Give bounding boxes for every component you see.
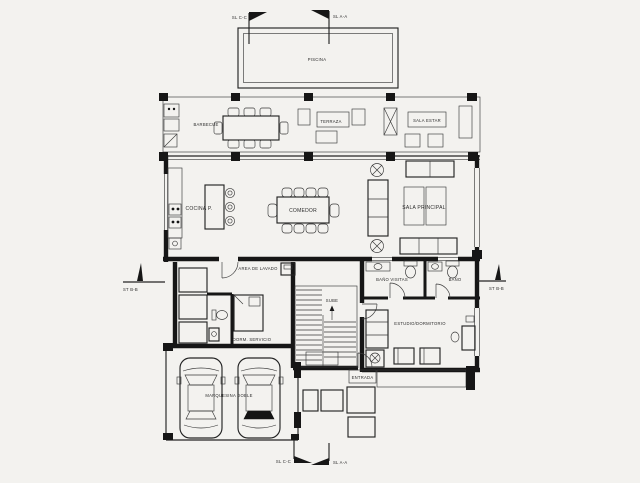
section-marker-label: SL A-A <box>333 460 347 465</box>
column <box>467 93 477 101</box>
barbecue-grill <box>164 104 179 147</box>
floor-plan-canvas: Piscina SL C-C SL A-A <box>0 0 640 483</box>
desk <box>451 316 475 350</box>
section-marker-label: ST B-B <box>489 286 504 291</box>
chair <box>420 348 440 364</box>
toilet <box>446 261 459 278</box>
living-room-label: Sala Principal <box>402 205 445 211</box>
section-marker-top-aa: SL A-A <box>311 10 347 44</box>
section-marker-bottom-cc: SL C-C <box>276 440 312 464</box>
section-marker-bottom-aa: SL A-A <box>311 443 347 465</box>
chair <box>394 348 414 364</box>
study-bedroom: Estudio/Dormitorio <box>362 304 475 367</box>
sofa <box>368 180 388 236</box>
section-marker-right-bb: ST B-B <box>477 264 506 291</box>
laundry-area: Area de Lavado <box>222 262 295 278</box>
pool: Piscina <box>238 28 398 88</box>
side-table <box>371 164 384 177</box>
column <box>304 93 313 101</box>
stair-arrow-icon <box>330 306 335 312</box>
terrace-dining-set: Barbecue <box>193 108 288 148</box>
service-bedroom: Dorm. Servicio <box>207 294 272 345</box>
closets <box>179 268 207 343</box>
column <box>386 93 395 101</box>
stair-landing <box>306 352 338 365</box>
sofa <box>400 238 457 254</box>
door-arc <box>362 304 377 319</box>
service-bedroom-label: Dorm. Servicio <box>233 337 272 342</box>
barbecue-label: Barbecue <box>193 122 218 127</box>
terrace-lounge-set: Terraza <box>298 108 397 143</box>
side-table <box>371 240 384 253</box>
guest-bathroom: Baño Visitas <box>366 261 417 298</box>
stove <box>169 204 181 228</box>
kitchen: Cocina P. <box>168 168 235 249</box>
patio-pavers <box>303 387 375 437</box>
entrance-label: Entrada <box>352 375 374 380</box>
bathroom-label: Baño <box>449 277 462 282</box>
door-arc <box>222 262 238 278</box>
pool-label: Piscina <box>308 57 327 62</box>
column <box>231 93 240 101</box>
car <box>235 358 283 438</box>
section-marker-label: SL A-A <box>333 14 347 19</box>
living-room: Sala Principal <box>368 161 457 254</box>
vanity-sink <box>366 262 390 271</box>
bed <box>234 295 263 331</box>
toilet <box>212 310 228 320</box>
corner-table <box>366 350 384 367</box>
kitchen-label: Cocina P. <box>186 206 213 212</box>
kitchen-sink <box>169 238 181 249</box>
section-marker-left-bb: ST B-B <box>123 263 165 292</box>
vanity-sink <box>428 262 442 271</box>
section-marker-label: SL C-C <box>232 15 247 20</box>
section-marker-label: SL C-C <box>276 459 291 464</box>
carport-label: Marquesina Doble <box>205 393 252 398</box>
car <box>177 358 225 438</box>
study-bedroom-label: Estudio/Dormitorio <box>394 321 446 326</box>
stairs: Sube <box>295 286 357 367</box>
sofa <box>366 310 388 348</box>
sofa <box>406 161 454 177</box>
dining-label: Comedor <box>289 208 317 214</box>
small-sink <box>209 328 219 341</box>
dining-room: Comedor <box>268 188 339 233</box>
terrace: Barbecue Terraza Sala Estar <box>159 93 480 152</box>
terrace-sala-estar-set: Sala Estar <box>405 106 472 147</box>
entry-walkway <box>377 370 466 387</box>
column <box>159 93 168 101</box>
carport: Marquesina Doble <box>163 343 301 440</box>
guest-bathroom-label: Baño Visitas <box>376 277 408 282</box>
bathroom: Baño <box>428 261 462 298</box>
door-arc <box>436 284 450 298</box>
door-arc <box>390 283 405 298</box>
laundry-label: Area de Lavado <box>238 266 278 271</box>
section-marker-label: ST B-B <box>123 287 138 292</box>
stairs-label: Sube <box>326 298 338 303</box>
sala-estar-label: Sala Estar <box>413 118 441 123</box>
toilet <box>404 261 417 278</box>
terraza-label: Terraza <box>320 119 341 124</box>
